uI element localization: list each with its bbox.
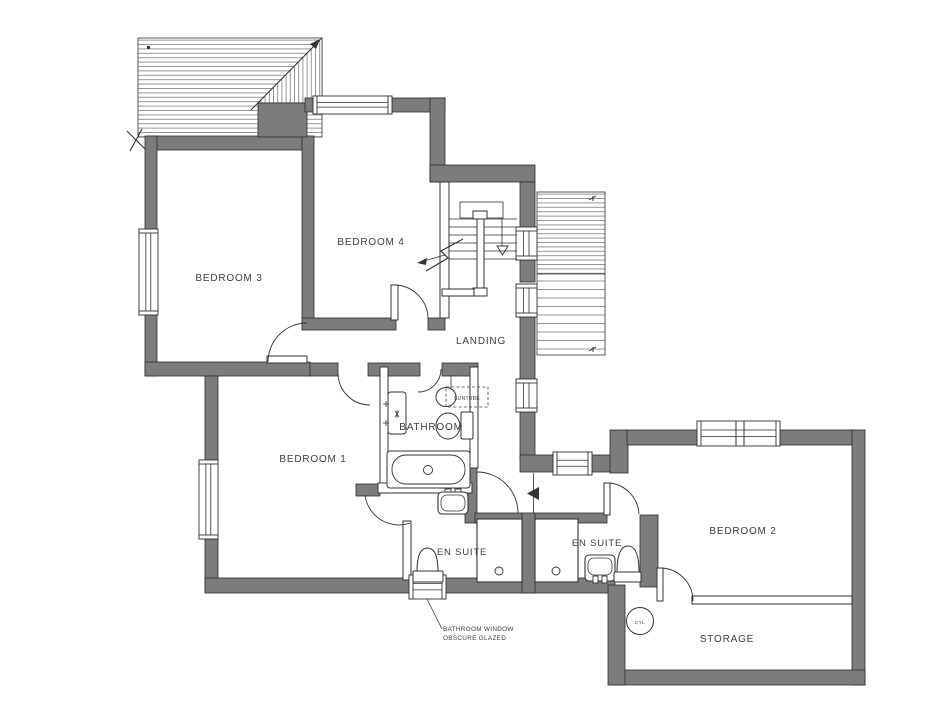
wash-basin-ensuite-2: [585, 555, 615, 583]
window: [697, 421, 780, 446]
stair-handrail: [477, 214, 484, 294]
wall-segment: [356, 484, 380, 496]
room-label-storage: STORAGE: [700, 634, 754, 645]
door-swing-arc: [394, 285, 428, 319]
wall-segment: [428, 318, 445, 330]
door-leaf: [604, 483, 610, 515]
wall-segment: [430, 165, 535, 182]
wall-segment: [852, 430, 865, 685]
window: [313, 96, 392, 114]
stair-direction-arrow-icon: [497, 246, 508, 255]
door-swing-arc: [660, 568, 693, 601]
room-label-bedroom-1: BEDROOM 1: [279, 454, 346, 465]
wall-segment: [610, 430, 628, 473]
door-leaf: [657, 568, 663, 601]
section-marker-icon: [527, 487, 539, 500]
suntube-label: SUNTUBE: [454, 396, 480, 402]
partition-wall-segment: [692, 596, 852, 604]
wall-segment: [148, 136, 310, 150]
wall-segment: [778, 430, 854, 445]
door-swing-arc: [365, 495, 410, 525]
room-label-bathroom: BATHROOM: [399, 422, 462, 433]
roof-hatch-right-lower: [537, 274, 605, 355]
wall-segment: [522, 513, 535, 593]
wall-segment: [640, 515, 658, 587]
wall-segment: [302, 318, 396, 330]
wall-segment: [205, 376, 218, 462]
window-note-2: OBSCURE GLAZED: [443, 635, 506, 642]
door-swing-arc: [418, 369, 441, 392]
door-leaf: [391, 285, 398, 320]
wall-segment: [520, 411, 535, 458]
wash-basin-ensuite-1: [438, 489, 468, 514]
window: [516, 379, 537, 412]
window: [516, 227, 537, 260]
annotation-leader-line: [427, 599, 442, 629]
door-swing-arc: [477, 472, 518, 513]
partition-wall-segment: [440, 182, 449, 318]
roof-hatch-right-upper: [537, 192, 605, 274]
wall-segment: [145, 362, 310, 376]
window: [199, 460, 218, 539]
room-label-bedroom-2: BEDROOM 2: [709, 526, 776, 537]
wall-segment: [520, 259, 535, 282]
wall-segment: [520, 316, 535, 381]
wall-segment: [590, 455, 612, 472]
cylinder-label: CYL: [635, 620, 645, 626]
window-note-1: BATHROOM WINDOW: [443, 626, 514, 633]
wall-segment: [610, 670, 865, 685]
wall-segment: [627, 430, 700, 445]
floor-plan-page: BEDROOM 3BEDROOM 4LANDINGBEDROOM 1BATHRO…: [0, 0, 948, 727]
wall-segment: [368, 363, 420, 376]
window: [553, 452, 592, 475]
shower-tray-ensuite-2: [535, 519, 578, 582]
room-label-en-suite-2: EN SUITE: [572, 538, 622, 549]
window: [139, 229, 158, 315]
wall-segment: [520, 455, 557, 472]
room-label-en-suite-1: EN SUITE: [437, 547, 487, 558]
wall-segment: [258, 103, 307, 137]
staircase: [417, 202, 517, 296]
wall-segment: [145, 136, 157, 232]
window: [516, 284, 537, 317]
wall-segment: [302, 136, 314, 328]
room-label-bedroom-3: BEDROOM 3: [195, 273, 262, 284]
room-label-bedroom-4: BEDROOM 4: [337, 237, 404, 248]
door-leaf: [267, 356, 307, 363]
bathtub: [387, 451, 470, 488]
room-label-landing: LANDING: [456, 336, 506, 347]
floor-plan-canvas: BEDROOM 3BEDROOM 4LANDINGBEDROOM 1BATHRO…: [0, 0, 948, 727]
wc-ensuite-2: [614, 546, 641, 582]
wall-segment: [310, 363, 338, 376]
partition-wall-segment: [403, 521, 411, 580]
door-swing-arc: [610, 483, 639, 514]
wall-segment: [608, 585, 625, 685]
stair-up-arrow-icon: [417, 258, 427, 265]
door-swing-arc: [338, 373, 370, 405]
wall-segment: [520, 182, 535, 228]
